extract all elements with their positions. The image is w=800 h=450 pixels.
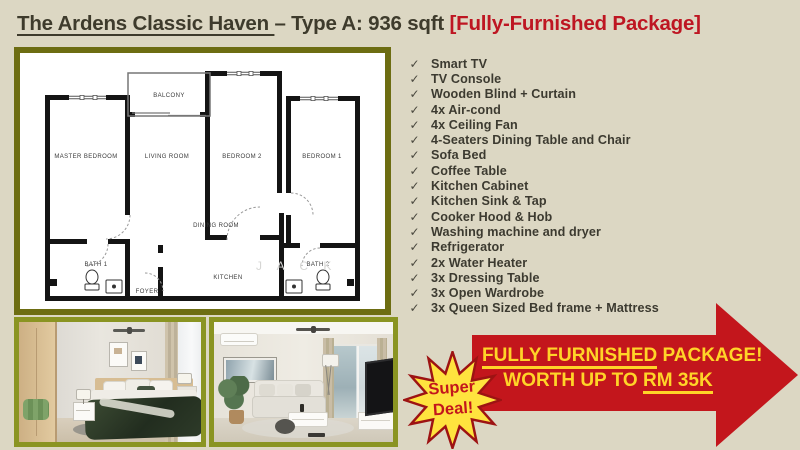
room-label-balcony: BALCONY [153, 93, 184, 99]
checklist-item: ✓ Kitchen Cabinet [407, 178, 799, 193]
checklist-item-label: Cooker Hood & Hob [431, 210, 552, 224]
checklist-item-label: Sofa Bed [431, 148, 486, 162]
checklist-item-label: Wooden Blind + Curtain [431, 87, 576, 101]
room-label-bath-1: BATH 1 [85, 262, 108, 268]
room-label-dining-room: DINING ROOM [193, 223, 239, 229]
checklist-item: ✓ Refrigerator [407, 240, 799, 255]
floorplan-drawing: MASTER BEDROOM LIVING ROOM BEDROOM 2 BED… [20, 53, 385, 309]
checklist-item-label: Washing machine and dryer [431, 225, 601, 239]
checklist-item: ✓ Coffee Table [407, 163, 799, 178]
sofa-cushion [259, 384, 275, 396]
plant-foliage [218, 376, 250, 412]
check-icon: ✓ [407, 301, 422, 315]
flyer-page: The Ardens Classic Haven – Type A: 936 s… [0, 0, 800, 450]
check-icon: ✓ [407, 194, 422, 208]
check-icon: ✓ [407, 225, 422, 239]
checklist-item-label: 4-Seaters Dining Table and Chair [431, 133, 631, 147]
promo-line2-value: RM 35K [643, 370, 713, 394]
nightstand [73, 402, 95, 421]
check-icon: ✓ [407, 87, 422, 101]
wardrobe [19, 322, 57, 442]
floorplan-panel: MASTER BEDROOM LIVING ROOM BEDROOM 2 BED… [14, 47, 391, 315]
check-icon: ✓ [407, 118, 422, 132]
tv-console [358, 412, 393, 430]
super-deal-text: Super Deal! [402, 375, 504, 424]
room-label-foyer: FOYER [136, 289, 159, 295]
table-lamp [76, 389, 91, 400]
check-icon: ✓ [407, 271, 422, 285]
living-room-photo [209, 317, 398, 447]
checklist-item: ✓ Cooker Hood & Hob [407, 209, 799, 224]
check-icon: ✓ [407, 210, 422, 224]
checklist-item-label: 4x Air-cond [431, 103, 501, 117]
tv-screen [365, 358, 393, 416]
check-icon: ✓ [407, 164, 422, 178]
checklist-item: ✓ 4x Ceiling Fan [407, 117, 799, 132]
checklist-item-label: Coffee Table [431, 164, 507, 178]
table-decor [300, 404, 304, 412]
checklist-item-label: TV Console [431, 72, 501, 86]
check-icon: ✓ [407, 72, 422, 86]
checklist-item-label: Refrigerator [431, 240, 504, 254]
pouf [275, 419, 295, 434]
checklist-item: ✓ Sofa Bed [407, 148, 799, 163]
bathroom-fixtures [85, 270, 330, 293]
plant-pot [229, 410, 244, 424]
check-icon: ✓ [407, 240, 422, 254]
title-unit-type: – Type A: 936 sqft [274, 12, 449, 35]
checklist-item-label: 2x Water Heater [431, 256, 527, 270]
wall-art-frame [131, 351, 147, 371]
sofa-cushion [295, 384, 311, 396]
air-conditioner [220, 333, 258, 346]
watermark: J A C K [256, 259, 337, 273]
furnishing-checklist: ✓ Smart TV ✓ TV Console ✓ Wooden Blind +… [407, 56, 799, 316]
checklist-item-label: Kitchen Cabinet [431, 179, 528, 193]
promo-arrow-banner: FULLY FURNISHED PACKAGE! WORTH UP TO RM … [468, 299, 800, 450]
checklist-item: ✓ Smart TV [407, 56, 799, 71]
checklist-item: ✓ 4-Seaters Dining Table and Chair [407, 132, 799, 147]
check-icon: ✓ [407, 179, 422, 193]
check-icon: ✓ [407, 256, 422, 270]
promo-line1-rest: PACKAGE! [657, 345, 762, 366]
title-project-name: The Ardens Classic Haven [17, 12, 274, 35]
living-room-scene [214, 322, 393, 442]
check-icon: ✓ [407, 286, 422, 300]
checklist-item-label: Smart TV [431, 57, 487, 71]
checklist-item: ✓ Washing machine and dryer [407, 224, 799, 239]
plaid-stool [23, 399, 49, 420]
room-label-living-room: LIVING ROOM [145, 154, 189, 160]
check-icon: ✓ [407, 148, 422, 162]
check-icon: ✓ [407, 133, 422, 147]
bedroom-scene [19, 322, 201, 442]
promo-line-1: FULLY FURNISHED PACKAGE! [482, 343, 734, 368]
floor-decor [308, 433, 325, 437]
checklist-item: ✓ Kitchen Sink & Tap [407, 194, 799, 209]
check-icon: ✓ [407, 57, 422, 71]
room-label-master-bedroom: MASTER BEDROOM [54, 154, 117, 160]
promo-text: FULLY FURNISHED PACKAGE! WORTH UP TO RM … [482, 343, 734, 393]
bedroom-photo [14, 317, 206, 447]
checklist-item: ✓ 4x Air-cond [407, 102, 799, 117]
page-title: The Ardens Classic Haven – Type A: 936 s… [17, 12, 701, 36]
super-deal-badge: Super Deal! [403, 351, 502, 449]
checklist-item: ✓ 3x Dressing Table [407, 270, 799, 285]
room-label-bedroom-1: BEDROOM 1 [302, 154, 342, 160]
title-package-highlight: [Fully-Furnished Package] [450, 12, 701, 35]
ceiling-fan-hub [127, 327, 132, 334]
promo-line1-underlined: FULLY FURNISHED [482, 345, 657, 369]
checklist-item-label: 3x Dressing Table [431, 271, 540, 285]
wall-art-frame [109, 342, 128, 367]
checklist-item-label: Kitchen Sink & Tap [431, 194, 547, 208]
ceiling-fan-hub [311, 326, 316, 333]
table-lamp [177, 373, 192, 384]
checklist-item: ✓ Wooden Blind + Curtain [407, 87, 799, 102]
checklist-item-label: 4x Ceiling Fan [431, 118, 518, 132]
checklist-item-label: 3x Open Wardrobe [431, 286, 544, 300]
toilet-icon [86, 270, 98, 284]
room-label-kitchen: KITCHEN [213, 275, 242, 281]
promo-line-2: WORTH UP TO RM 35K [482, 368, 734, 393]
checklist-item: ✓ TV Console [407, 71, 799, 86]
promo-line2-prefix: WORTH UP TO [503, 370, 643, 391]
room-label-bedroom-2: BEDROOM 2 [222, 154, 262, 160]
check-icon: ✓ [407, 103, 422, 117]
checklist-item: ✓ 2x Water Heater [407, 255, 799, 270]
sofa-cushion [277, 384, 293, 396]
